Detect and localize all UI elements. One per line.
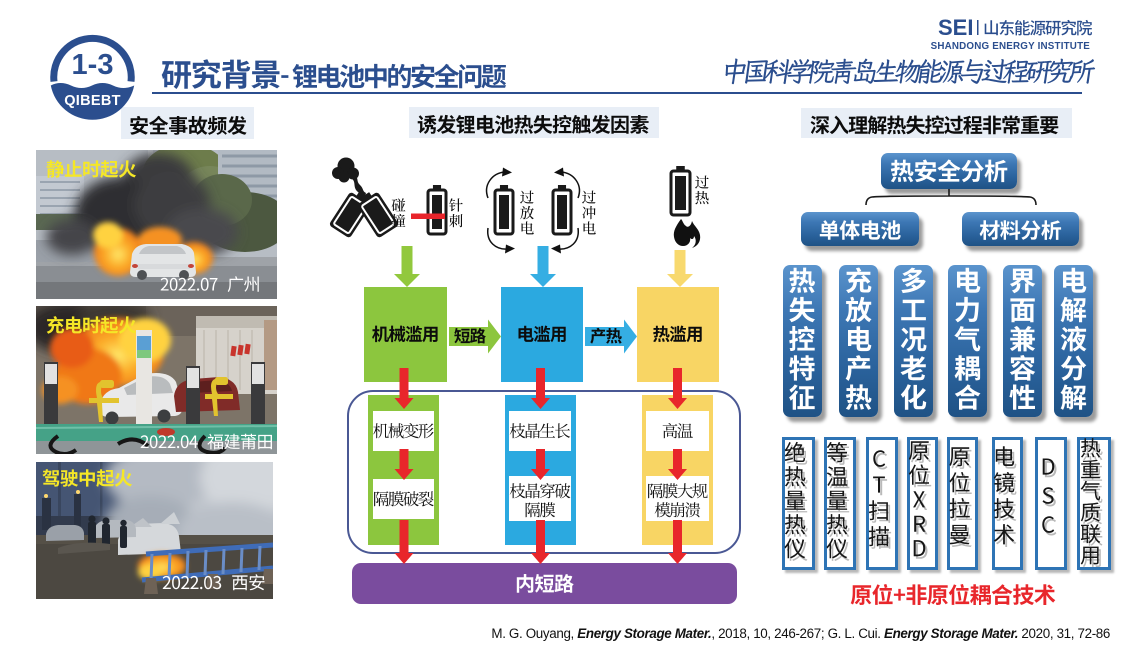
svg-text:1-3: 1-3 bbox=[72, 49, 114, 81]
svg-text:M. G. Ouyang, Energy Storage M: M. G. Ouyang, Energy Storage Mater., 201… bbox=[491, 626, 1110, 641]
svg-text:QIBEBT: QIBEBT bbox=[64, 93, 121, 109]
svg-text:SEI: SEI bbox=[938, 15, 973, 40]
svg-text:SHANDONG ENERGY INSTITUTE: SHANDONG ENERGY INSTITUTE bbox=[931, 41, 1091, 52]
